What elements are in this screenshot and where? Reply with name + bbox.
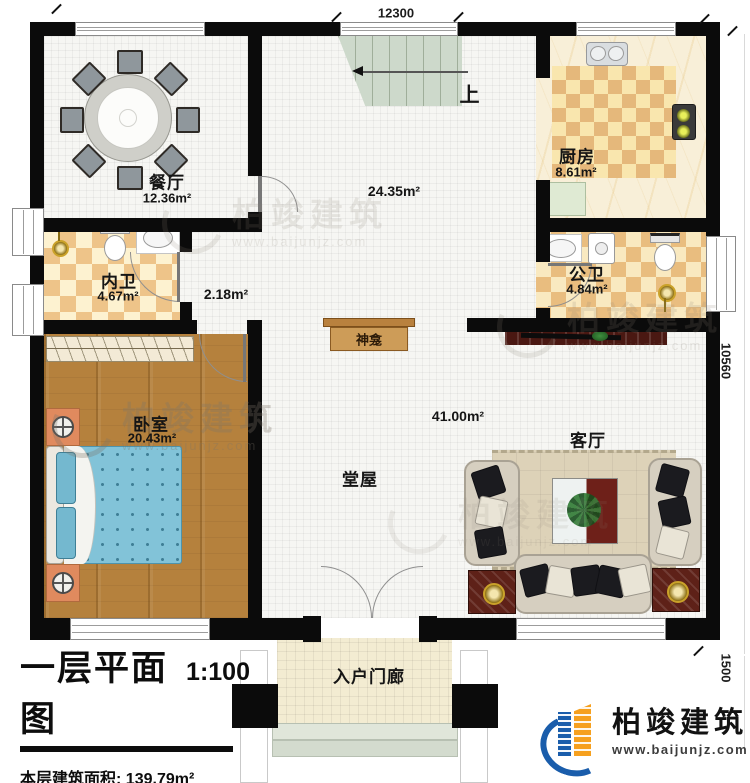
title-underline: [20, 746, 233, 752]
room-area-inner-bath: 4.67m²: [97, 289, 138, 304]
shower-hose: [664, 298, 666, 312]
side-table-lamp: [483, 583, 505, 605]
floor-plan-canvas: 柏竣建筑 www.baijunjz.com 柏竣建筑 www.baijunjz.…: [0, 0, 750, 783]
stat-value: 139.79m²: [126, 771, 195, 783]
dining-chair: [117, 166, 143, 190]
plan-scale: 1:100: [186, 658, 250, 687]
stove-burner: [677, 125, 690, 138]
toilet-bowl: [104, 235, 126, 261]
window-dining-north: [75, 22, 205, 36]
stair-up-label: 上: [460, 79, 481, 108]
dimension-tick: [453, 12, 464, 23]
logo-tower-orange: [574, 704, 591, 756]
room-area-kitchen: 8.61m²: [555, 165, 596, 180]
window-stair-north: [340, 22, 458, 36]
dimension-top: 12300: [378, 6, 414, 21]
shrine-label: 神龛: [356, 330, 382, 349]
wardrobe-rail: [46, 348, 194, 349]
room-area-bedroom: 20.43m²: [128, 431, 176, 446]
side-table-lamp: [667, 581, 689, 603]
dining-table-center: [119, 109, 137, 127]
door-jamb: [303, 616, 321, 642]
room-label-hall: 堂屋: [342, 466, 378, 491]
fridge: [548, 182, 586, 216]
toilet-tank: [650, 233, 680, 243]
stat-label: 本层建筑面积:: [20, 771, 121, 783]
wall-dining-south: [30, 218, 262, 232]
bed-pillow: [56, 452, 76, 504]
sofa-cushion: [474, 495, 508, 529]
coffee-table-plant: [567, 493, 601, 527]
brand-name: 柏竣建筑: [612, 709, 748, 738]
dining-chair: [176, 107, 200, 133]
bath-sink: [546, 239, 576, 258]
wall-publicbath-west: [536, 232, 550, 262]
window-bedroom-west: [12, 284, 44, 336]
dining-chair: [60, 107, 84, 133]
corridor-area: 2.18m²: [204, 286, 248, 302]
title-block: 一层平面图 1:100 本层建筑面积: 139.79m² 本栋建筑面积: 392…: [20, 640, 250, 783]
door-leaf-innerbath: [177, 252, 180, 302]
brand-logo: 柏竣建筑 www.baijunjz.com: [540, 698, 748, 768]
logo-tower-blue: [558, 712, 571, 756]
window-innerbath-west: [12, 208, 44, 256]
dining-chair: [117, 50, 143, 74]
wall-kitchen-west: [536, 36, 550, 78]
dimension-line-right: [744, 34, 745, 654]
window-bedroom-south: [70, 618, 210, 640]
wall-innerbath-east: [180, 232, 192, 252]
dimension-tick: [51, 4, 62, 15]
brand-logo-icon: [540, 698, 602, 768]
plan-title: 一层平面图: [20, 640, 172, 742]
door-jamb: [419, 616, 437, 642]
dimension-right-upper: 10560: [719, 343, 734, 379]
washing-machine-door: [595, 242, 608, 255]
window-living-south: [516, 618, 666, 640]
window-publicbath-east: [706, 236, 736, 312]
stat-floor-area: 本层建筑面积: 139.79m²: [20, 765, 250, 783]
toilet-bowl: [654, 244, 676, 271]
door-leaf-bedroom: [243, 334, 246, 382]
hall-area-lower: 41.00m²: [432, 408, 484, 424]
door-leaf-dining: [258, 176, 262, 212]
dimension-tick: [727, 26, 738, 37]
dimension-tick: [693, 646, 704, 657]
console-plant: [592, 331, 608, 341]
porch-step: [272, 723, 458, 740]
hall-area-upper: 24.35m²: [368, 183, 420, 199]
wall-bedroom-east: [248, 334, 262, 618]
wall-dining-east: [248, 36, 262, 176]
sofa-cushion: [617, 563, 651, 597]
wall-publicbath-south: [467, 318, 706, 332]
shower-head: [52, 240, 69, 257]
shrine-table-top: [323, 318, 415, 327]
wall-innerbath-east: [180, 302, 192, 320]
stair-direction-line: [356, 71, 468, 73]
wall-exterior-right: [706, 22, 720, 640]
room-label-porch: 入户门廊: [333, 663, 405, 688]
wall-publicbath-west: [536, 308, 550, 318]
nightstand-lamp: [52, 572, 74, 594]
stair-arrow-icon: [352, 66, 363, 76]
bed-pillow: [56, 507, 76, 559]
stove-burner: [677, 109, 690, 122]
room-area-dining: 12.36m²: [143, 191, 191, 206]
nightstand-lamp: [52, 416, 74, 438]
porch-column: [452, 684, 498, 728]
room-area-public-bath: 4.84m²: [566, 282, 607, 297]
room-label-living: 客厅: [570, 427, 606, 452]
wall-bedroom-north: [30, 320, 197, 334]
wall-kitchen-south: [536, 218, 720, 232]
dimension-tick: [331, 12, 342, 23]
brand-url: www.baijunjz.com: [612, 742, 748, 757]
shower-head: [658, 284, 676, 302]
wall-bedroom-north: [247, 320, 262, 334]
porch-step: [272, 740, 458, 757]
window-kitchen-north: [576, 22, 676, 36]
wardrobe: [46, 336, 194, 362]
sofa-cushion: [474, 526, 508, 560]
dimension-right-lower: 1500: [719, 654, 734, 683]
